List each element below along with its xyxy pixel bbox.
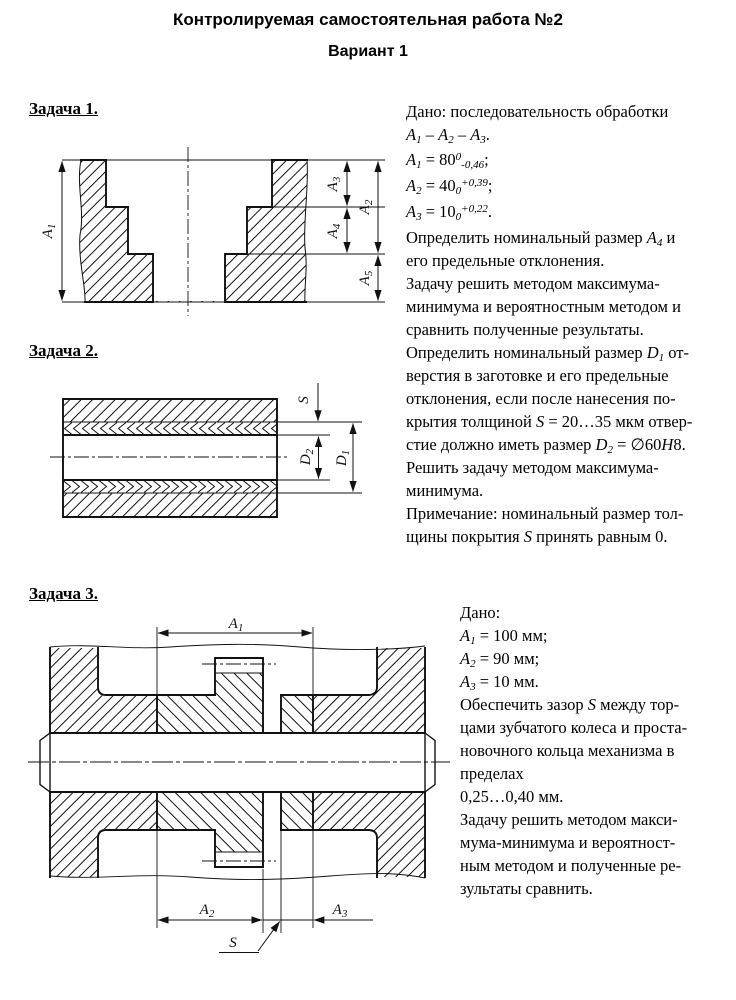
dim-label-a2: А2 xyxy=(199,902,215,920)
task3-gear xyxy=(157,658,263,867)
dim-label-a1: А1 xyxy=(228,616,244,634)
dim-label-a4: А4 xyxy=(325,223,343,239)
dim-label-d2: D2 xyxy=(298,448,316,466)
task2-drawing: S D2 D1 xyxy=(50,383,362,517)
task2-dimensions: S D2 D1 xyxy=(296,383,353,492)
dim-label-a3: А3 xyxy=(332,902,348,920)
task3-spacer-ring xyxy=(281,695,313,830)
task2-sleeve-walls xyxy=(63,399,277,517)
dim-label-d1: D1 xyxy=(334,450,352,467)
dim-label-a2: А2 xyxy=(357,199,375,215)
technical-drawings: А1 А3 А4 А2 А5 xyxy=(0,0,736,1000)
dim-label-a1: А1 xyxy=(40,224,58,240)
document-page: Контролируемая самостоятельная работа №2… xyxy=(0,0,736,1000)
dim-label-s: S xyxy=(296,396,312,404)
task3-drawing: А1 А2 А3 S xyxy=(28,616,450,953)
coating-layer-bottom xyxy=(63,480,277,493)
task3-dimensions: А1 А2 А3 S xyxy=(157,616,373,953)
dim-label-s: S xyxy=(229,935,237,951)
task1-drawing: А1 А3 А4 А2 А5 xyxy=(40,147,385,316)
dim-label-a3: А3 xyxy=(325,176,343,192)
dim-label-a5: А5 xyxy=(357,270,375,286)
coating-layer-top xyxy=(63,422,277,435)
task1-part-body xyxy=(79,159,307,302)
